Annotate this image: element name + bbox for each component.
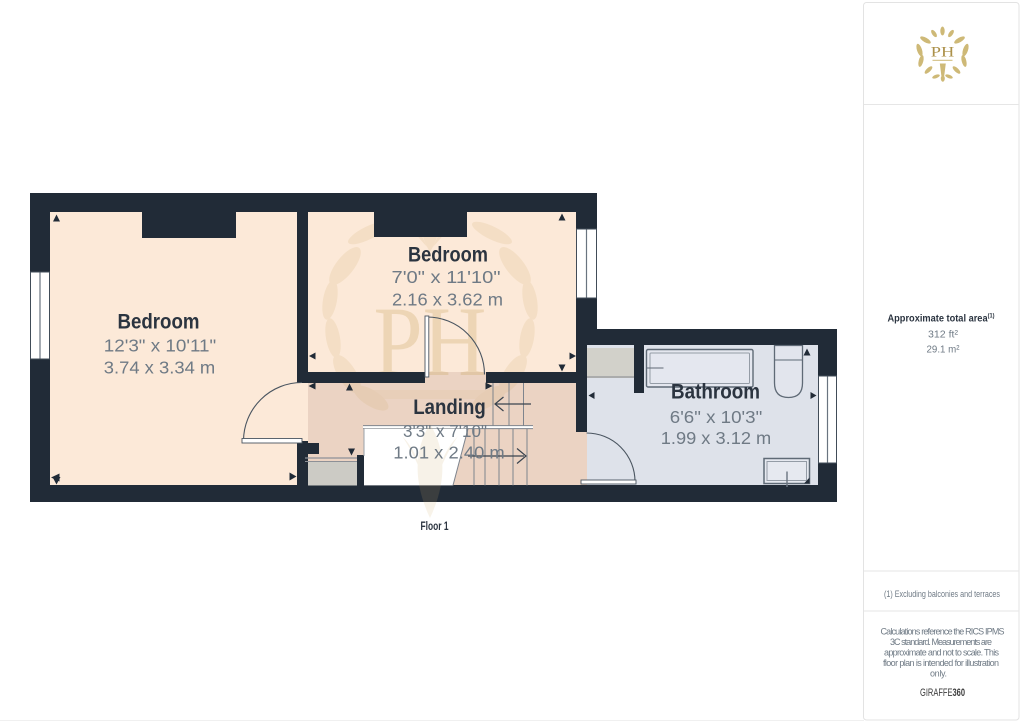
svg-text:floor plan is intended for ill: floor plan is intended for illustration <box>883 658 999 668</box>
svg-text:12'3" x 10'11": 12'3" x 10'11" <box>104 336 217 356</box>
svg-text:Bathroom: Bathroom <box>671 381 760 404</box>
svg-text:Bedroom: Bedroom <box>118 311 200 334</box>
svg-text:Landing: Landing <box>413 396 486 419</box>
svg-text:312 ft²: 312 ft² <box>928 329 958 341</box>
svg-text:7'0" x 11'10": 7'0" x 11'10" <box>392 267 501 287</box>
svg-text:29.1 m²: 29.1 m² <box>927 344 960 356</box>
svg-text:6'6" x 10'3": 6'6" x 10'3" <box>670 407 763 427</box>
svg-text:Calculations reference the RIC: Calculations reference the RICS IPMS <box>881 627 1005 637</box>
svg-text:3'3" x 7'10": 3'3" x 7'10" <box>403 421 487 441</box>
svg-text:only.: only. <box>930 669 947 679</box>
svg-text:Bedroom: Bedroom <box>408 244 488 267</box>
svg-text:2.16 x 3.62 m: 2.16 x 3.62 m <box>392 290 503 310</box>
svg-text:(1) Excluding balconies and te: (1) Excluding balconies and terraces <box>884 589 1000 599</box>
svg-text:Approximate total area(1): Approximate total area(1) <box>888 313 995 325</box>
svg-text:1.99 x 3.12 m: 1.99 x 3.12 m <box>661 428 772 448</box>
svg-text:PH: PH <box>931 45 955 61</box>
svg-text:1.01 x 2.40 m: 1.01 x 2.40 m <box>393 443 505 463</box>
svg-text:GIRAFFE360: GIRAFFE360 <box>920 687 965 699</box>
svg-text:3C standard. Measurements are: 3C standard. Measurements are <box>890 637 992 647</box>
svg-text:approximate and not to scale.: approximate and not to scale. This <box>884 648 1000 658</box>
svg-text:Floor 1: Floor 1 <box>421 519 449 533</box>
svg-text:3.74 x 3.34 m: 3.74 x 3.34 m <box>104 358 216 378</box>
